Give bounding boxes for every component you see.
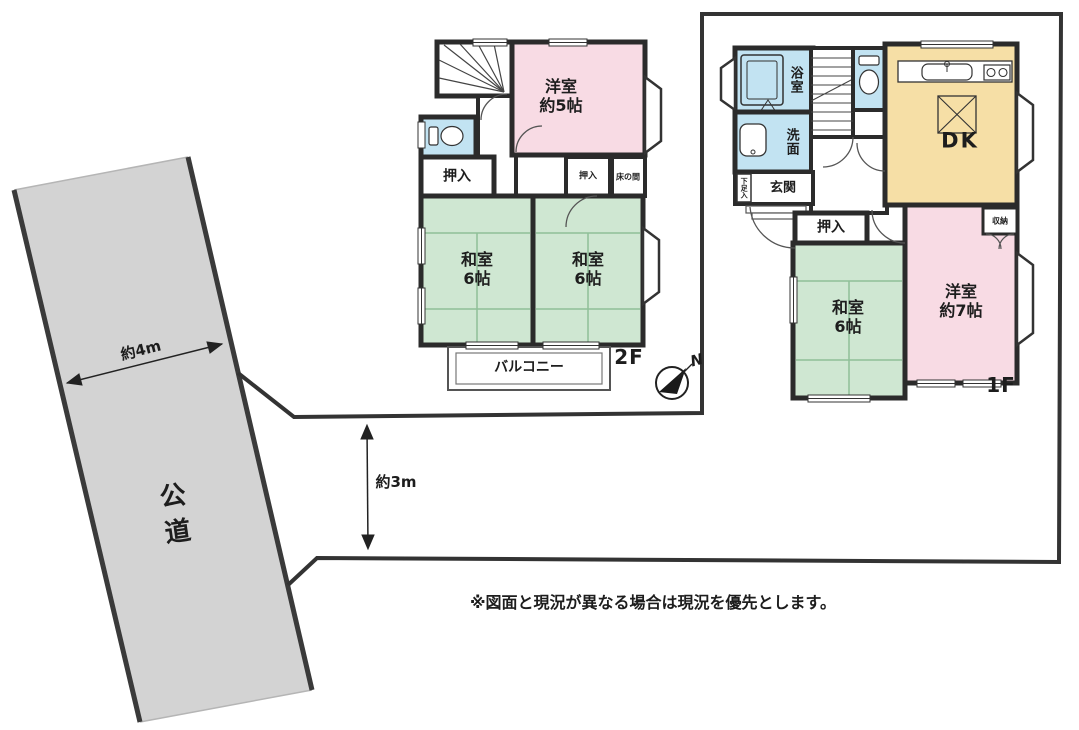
road-shape bbox=[14, 157, 312, 722]
toilet-2f-icon bbox=[421, 117, 476, 157]
bay-window-2f-top-icon bbox=[645, 77, 661, 153]
closet-small-2f bbox=[566, 157, 610, 196]
staircase-2f-icon bbox=[437, 42, 513, 96]
bay-window-western7-icon bbox=[1017, 253, 1033, 345]
sink-icon bbox=[740, 124, 766, 156]
washroom-1f bbox=[735, 112, 813, 172]
hallway-1f bbox=[811, 137, 887, 213]
floor2-plan bbox=[418, 39, 661, 390]
toilet-1f-icon bbox=[853, 48, 887, 110]
stove-icon bbox=[984, 65, 1010, 80]
balcony-2f bbox=[448, 347, 610, 390]
dining-kitchen-1f bbox=[885, 44, 1017, 205]
frontage-arrow bbox=[361, 425, 374, 549]
floor-plan-page: 公道 約4m 約3m 洋室 約5帖 押入 押入 床の間 和室 6帖 和室 6帖 … bbox=[0, 0, 1079, 730]
floor-plan-linework bbox=[0, 0, 1079, 730]
vestibule-2f bbox=[516, 155, 566, 196]
bathroom-1f bbox=[735, 48, 813, 112]
western-room5-2f bbox=[512, 42, 645, 155]
floor1-plan bbox=[721, 41, 1033, 402]
bay-window-dk-icon bbox=[1017, 93, 1033, 172]
compass-icon bbox=[656, 364, 692, 399]
staircase-1f-icon bbox=[811, 48, 853, 137]
closet-1f bbox=[795, 213, 867, 243]
washitsu-1f bbox=[793, 243, 905, 398]
washitsu-right-2f bbox=[533, 196, 643, 345]
shoe-cabinet-1f bbox=[737, 174, 751, 202]
bay-window-bath-icon bbox=[721, 58, 735, 110]
washitsu-left-2f bbox=[421, 196, 533, 345]
tokonoma-2f bbox=[612, 157, 645, 196]
bay-window-2f-bottom-icon bbox=[643, 228, 659, 304]
closet-2f bbox=[421, 157, 494, 196]
